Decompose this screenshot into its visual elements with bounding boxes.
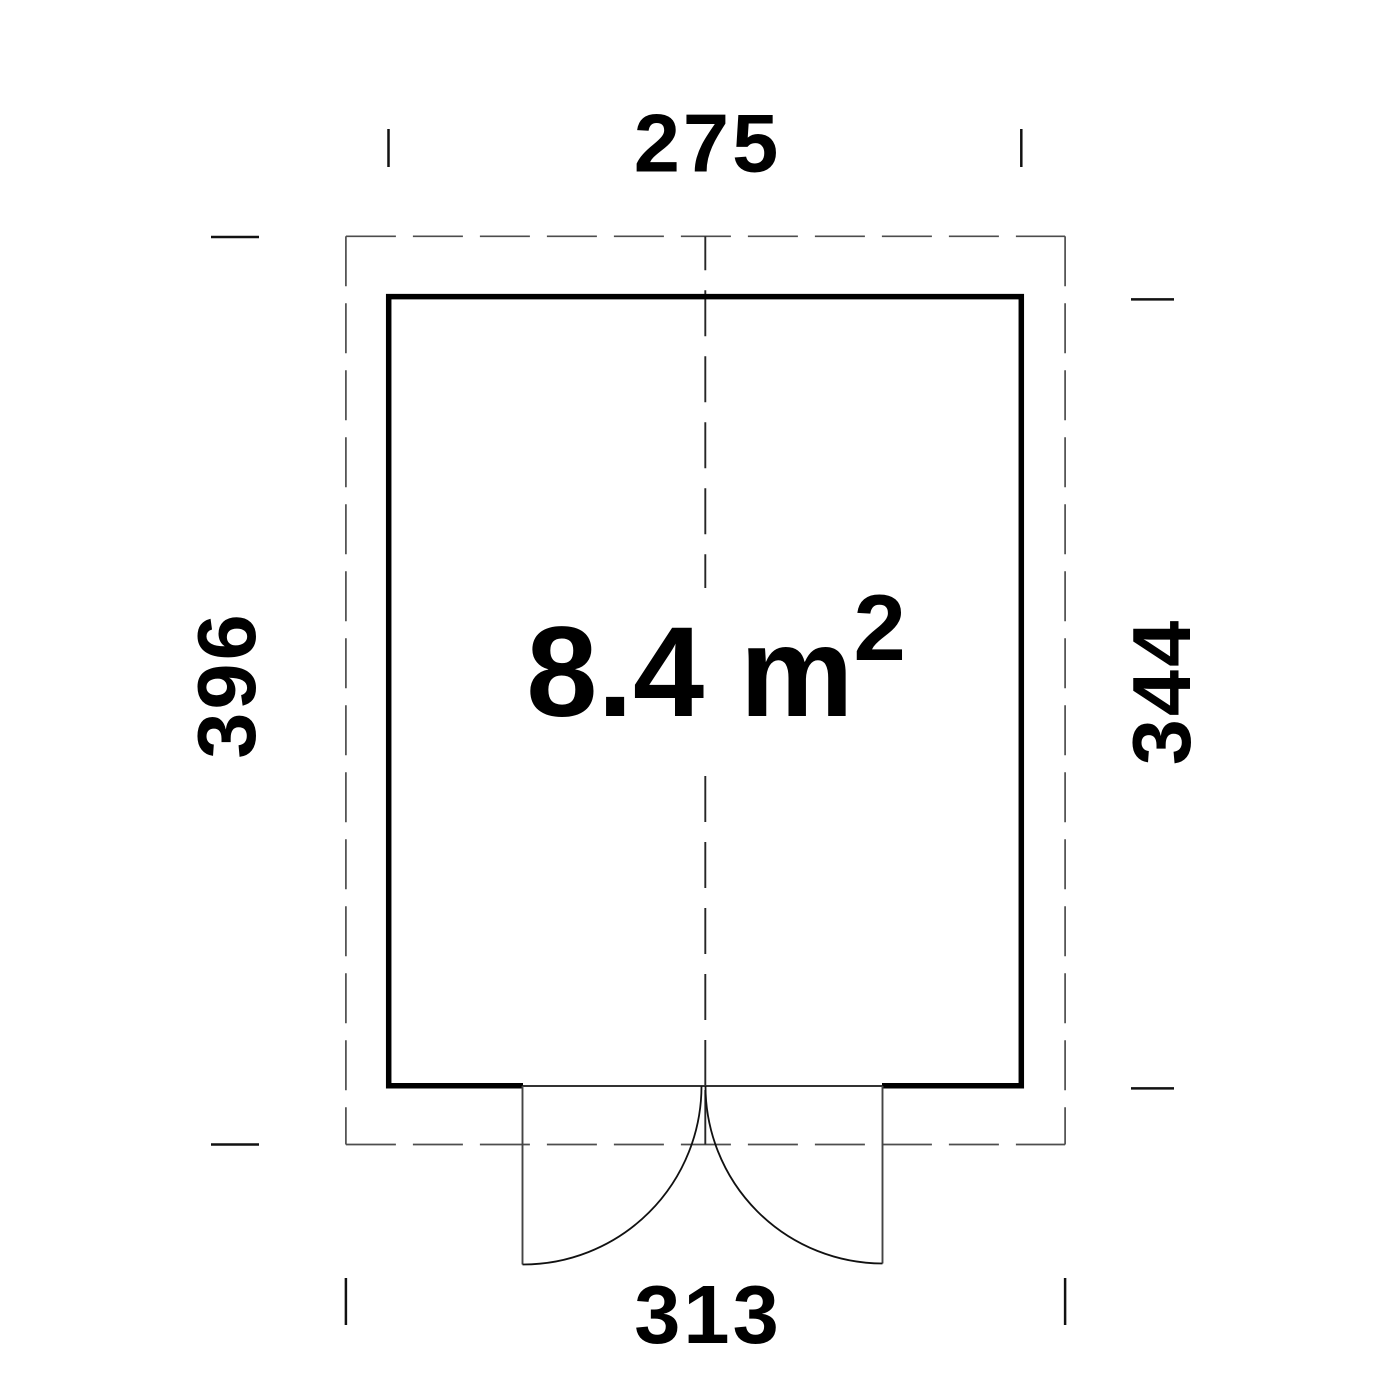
svg-text:313: 313 bbox=[634, 1268, 781, 1361]
svg-text:8.4 m2: 8.4 m2 bbox=[526, 575, 906, 744]
svg-text:275: 275 bbox=[634, 97, 781, 190]
svg-text:396: 396 bbox=[180, 611, 273, 758]
svg-text:344: 344 bbox=[1115, 618, 1208, 765]
